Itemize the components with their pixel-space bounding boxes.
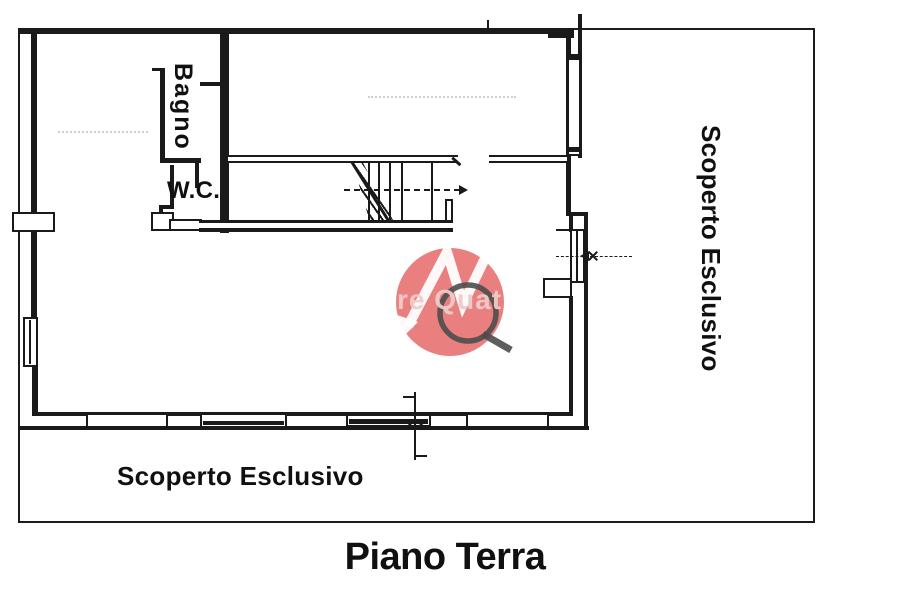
stair-wall-end-jamb [445, 199, 453, 222]
wall-right-inner-b [569, 296, 573, 414]
scan-noise-line-2 [368, 96, 516, 98]
area-label-scoperto-bottom: Scoperto Esclusivo [117, 461, 364, 492]
door-centerline-tick-top [403, 396, 415, 398]
stair-riser-3 [389, 163, 391, 221]
wall-bagno-partition [160, 68, 165, 162]
stair-riser-5 [431, 163, 433, 221]
room-label-bagno: Bagno [168, 63, 197, 151]
wall-corridor-to-right [489, 155, 567, 163]
room-label-wc: W.C. [167, 177, 220, 205]
window-bottom-1 [86, 413, 168, 428]
wall-interior-vertical [220, 32, 229, 233]
stair-direction-line [344, 189, 460, 191]
wall-top [18, 28, 574, 34]
wall-left-middle [31, 230, 37, 320]
pillar-right-interior [543, 278, 572, 298]
plan-title: Piano Terra [300, 536, 590, 579]
window-right-reveal-top [556, 229, 570, 231]
stair-direction-arrowhead [459, 185, 468, 195]
window-bottom-4 [466, 413, 549, 428]
window-right-tall-cap-bottom [569, 147, 579, 152]
scan-noise-line-1 [58, 131, 148, 133]
window-right-tall [567, 54, 581, 156]
stair-riser-4 [401, 163, 403, 221]
stair-riser-2 [378, 163, 380, 221]
window-bottom-3-glazing [349, 419, 428, 424]
door-centerline-tick-bottom [415, 455, 427, 457]
stair-riser-1 [368, 163, 370, 221]
window-bottom-2-glazing [203, 421, 284, 425]
scanned-floor-plan-sheet: re Quat Bagno W.C. Scoperto Esclusivo Sc… [0, 0, 900, 600]
window-left-mullion [29, 320, 31, 364]
wall-left-lower [32, 365, 38, 416]
window-right-tall-cap-top [569, 56, 579, 60]
area-label-scoperto-right: Scoperto Esclusivo [695, 125, 726, 372]
wall-left-upper [31, 32, 37, 215]
watermark-q-tail [483, 334, 511, 350]
shower-stub-wall [200, 82, 221, 86]
watermark-text: re Quat [397, 284, 502, 316]
pier-left-wall [12, 212, 55, 232]
bagno-partition-jamb-tick [152, 68, 160, 71]
wc-corner-pillar-b [169, 219, 202, 231]
stair-corridor-top-wall [228, 155, 458, 163]
